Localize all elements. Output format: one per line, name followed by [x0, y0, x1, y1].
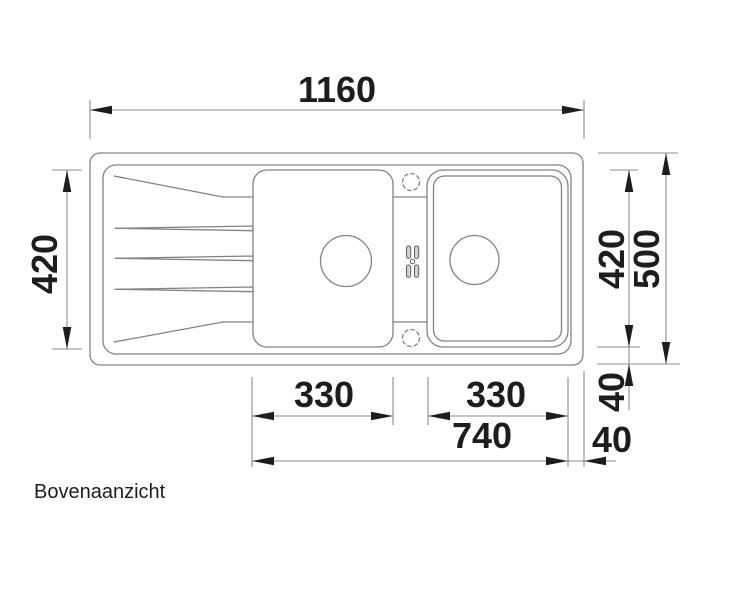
overflow-pill-2 — [415, 246, 419, 258]
technical-drawing-page: 11604204205004033033074040 Bovenaanzicht — [0, 0, 752, 600]
drainboard-groove-2 — [115, 256, 253, 261]
dimension-arrow — [428, 412, 450, 421]
dimension-arrow — [546, 457, 568, 466]
dimension-arrow — [625, 325, 634, 347]
dim-total-depth-500-label: 500 — [626, 229, 667, 289]
dim-bowls-span-740: 740 — [252, 415, 568, 465]
view-caption: Bovenaanzicht — [34, 481, 165, 504]
dim-total-depth-500: 500 — [626, 153, 670, 364]
dim-edge-offset-right-40: 40 — [591, 347, 633, 412]
drainboard-edge-line-bottom — [114, 322, 253, 342]
dimension-arrow — [252, 412, 274, 421]
right-basin-outer-edge — [427, 170, 568, 347]
tap-hole-top — [403, 174, 420, 191]
overflow-marking — [407, 246, 419, 277]
dimension-arrow — [371, 412, 393, 421]
sink-top-view-drawing: 11604204205004033033074040 — [0, 0, 752, 600]
dimension-arrow — [662, 153, 671, 175]
drainboard-edge-line-top — [114, 176, 253, 197]
dim-edge-offset-bottom-40-label: 40 — [592, 419, 632, 460]
dimension-arrow — [562, 106, 584, 115]
dimension-arrow — [662, 342, 671, 364]
dim-basin-depth-left-420: 420 — [24, 170, 71, 349]
dim-right-bowl-330-label: 330 — [466, 374, 526, 415]
dim-bowls-span-740-label: 740 — [452, 415, 512, 456]
overflow-dot — [410, 259, 415, 264]
sink-outline-group — [90, 153, 583, 365]
dimension-arrow — [625, 170, 634, 192]
dim-left-bowl-330-label: 330 — [294, 374, 354, 415]
overflow-pill-3 — [407, 265, 411, 277]
dim-edge-offset-right-40-label: 40 — [591, 372, 632, 412]
dim-edge-offset-bottom-40: 40 — [568, 419, 632, 465]
dim-total-width-1160-label: 1160 — [298, 69, 376, 110]
dimension-arrow — [252, 457, 274, 466]
overflow-pill-1 — [407, 246, 411, 258]
dim-left-bowl-330: 330 — [252, 374, 393, 420]
dim-total-width-1160: 1160 — [90, 69, 584, 114]
drainboard-groove-3 — [115, 287, 253, 292]
dimension-arrow — [63, 170, 72, 192]
dimension-arrow — [546, 412, 568, 421]
dim-basin-depth-left-420-label: 420 — [24, 234, 65, 294]
dimension-arrow — [63, 327, 72, 349]
overflow-pill-4 — [415, 265, 419, 277]
drainboard-groove-1 — [115, 226, 253, 231]
tap-hole-bottom — [403, 330, 420, 347]
dimension-arrow — [90, 106, 112, 115]
dim-right-bowl-330: 330 — [428, 374, 568, 420]
